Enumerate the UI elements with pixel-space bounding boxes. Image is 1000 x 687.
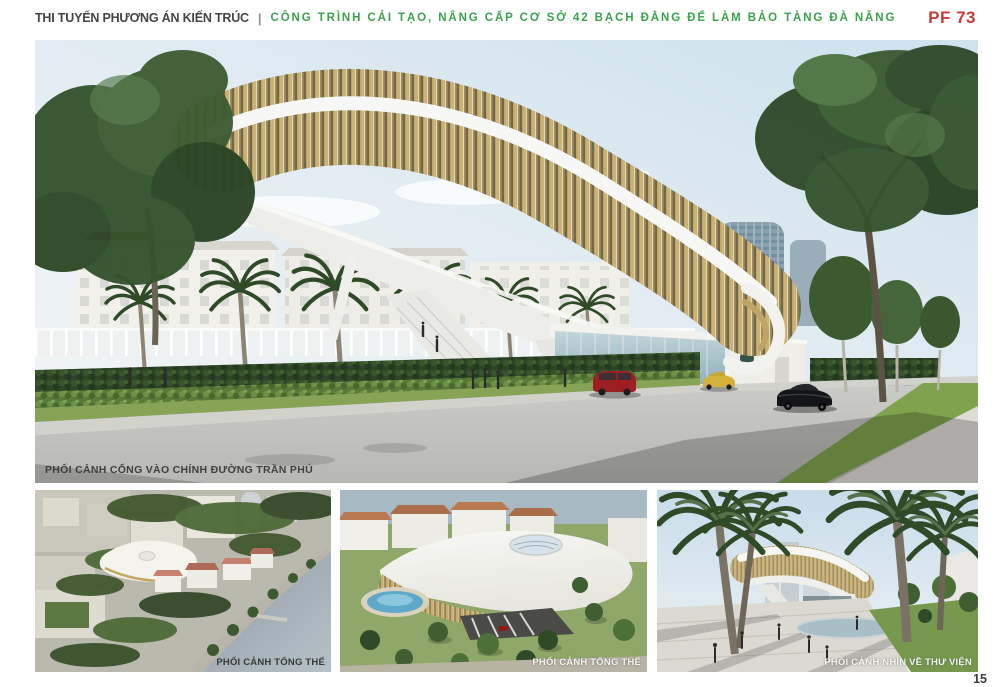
main-render-art xyxy=(35,40,978,483)
thumbnail-plaza-view: PHỐI CẢNH NHÌN VỀ THƯ VIỆN xyxy=(657,490,978,672)
thumbnail-2-art xyxy=(340,490,647,672)
competition-title: THI TUYỂN PHƯƠNG ÁN KIẾN TRÚC xyxy=(35,11,249,25)
header-titles: THI TUYỂN PHƯƠNG ÁN KIẾN TRÚC | CÔNG TRÌ… xyxy=(35,11,896,26)
red-car xyxy=(589,371,641,399)
entry-code: PF 73 xyxy=(928,8,976,28)
thumbnail-aerial-city: PHỐI CẢNH TỔNG THỂ xyxy=(35,490,331,672)
main-render-caption: PHỐI CẢNH CỔNG VÀO CHÍNH ĐƯỜNG TRẦN PHÚ xyxy=(45,464,313,476)
project-title: CÔNG TRÌNH CẢI TẠO, NÂNG CẤP CƠ SỞ 42 BẠ… xyxy=(271,12,897,24)
header: THI TUYỂN PHƯƠNG ÁN KIẾN TRÚC | CÔNG TRÌ… xyxy=(35,0,976,36)
thumbnail-3-caption: PHỐI CẢNH NHÌN VỀ THƯ VIỆN xyxy=(824,657,972,668)
main-render: PHỐI CẢNH CỔNG VÀO CHÍNH ĐƯỜNG TRẦN PHÚ xyxy=(35,40,978,483)
thumbnail-1-caption: PHỐI CẢNH TỔNG THỂ xyxy=(216,657,325,668)
thumbnail-3-art xyxy=(657,490,978,672)
thumbnail-2-caption: PHỐI CẢNH TỔNG THỂ xyxy=(532,657,641,668)
thumbnail-aerial-building: PHỐI CẢNH TỔNG THỂ xyxy=(340,490,647,672)
presentation-board: THI TUYỂN PHƯƠNG ÁN KIẾN TRÚC | CÔNG TRÌ… xyxy=(0,0,1000,687)
page-number: 15 xyxy=(973,672,987,686)
title-separator: | xyxy=(258,11,262,26)
thumbnail-1-art xyxy=(35,490,331,672)
pool xyxy=(361,587,429,617)
